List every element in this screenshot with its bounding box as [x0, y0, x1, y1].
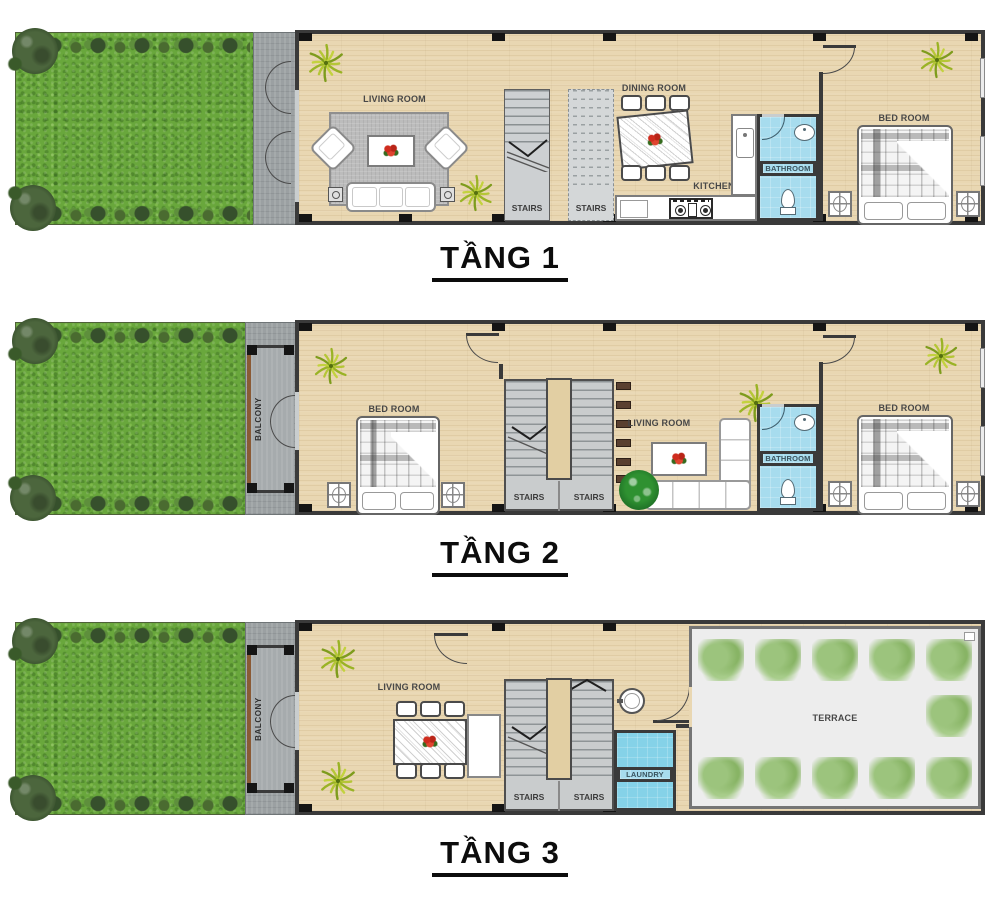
- stairs-block: STAIRS STAIRS: [504, 679, 614, 811]
- bed-fold: [391, 432, 436, 487]
- dining-chair: [444, 763, 465, 779]
- kitchen-sink-icon: [736, 128, 754, 158]
- walkway: BALCONY: [245, 622, 297, 815]
- door-arc-icon: [265, 131, 291, 158]
- nightstand: [828, 191, 852, 217]
- corner-bracket: [247, 483, 257, 493]
- terrace-bush-icon: [812, 639, 858, 681]
- column-marker: [299, 623, 312, 631]
- dining-chair: [444, 701, 465, 717]
- nightstand: [956, 481, 980, 507]
- stove-icon: [669, 198, 713, 219]
- shelf-slat: [616, 401, 631, 409]
- l-sofa: [645, 480, 751, 510]
- cabinet: [467, 714, 501, 778]
- shelf-slat: [616, 439, 631, 447]
- corner-bracket: [284, 645, 294, 655]
- door-arc-icon: [762, 117, 785, 140]
- stairs-block: STAIRS STAIRS: [504, 89, 614, 221]
- dining-chair: [420, 763, 441, 779]
- door-arc-icon: [270, 695, 295, 722]
- stairs-divider: [558, 781, 560, 811]
- stairs-block: STAIRS STAIRS: [504, 379, 614, 511]
- column-marker: [813, 33, 826, 41]
- plant-icon: [917, 40, 957, 80]
- bedroom-label: BED ROOM: [839, 113, 969, 123]
- terrace: TERRACE: [689, 626, 981, 809]
- door-arc-icon: [265, 87, 291, 114]
- terrace-bush-icon: [926, 757, 972, 799]
- flower-icon: [646, 132, 663, 148]
- bed: [857, 415, 953, 515]
- stairs-flight: STAIRS: [568, 89, 614, 221]
- balcony: BALCONY: [247, 645, 294, 793]
- house-floor-1: LIVING ROOM STAIRS: [295, 30, 985, 225]
- living-room-label: LIVING ROOM: [307, 94, 482, 104]
- kitchen-cabinet: [620, 200, 648, 218]
- burner-icon: [675, 205, 686, 216]
- plant-tuft-icon: [7, 57, 23, 71]
- terrace-bush-icon: [755, 639, 801, 681]
- terrace-bush-icon: [698, 757, 744, 799]
- dining-chair: [621, 165, 642, 181]
- stairs-label: STAIRS: [506, 792, 552, 802]
- pillow: [907, 202, 946, 220]
- door-opening: [295, 90, 299, 202]
- terrace-bush-icon: [926, 639, 972, 681]
- column-marker: [299, 804, 312, 812]
- bathroom: BATHROOM: [757, 114, 819, 221]
- column-marker: [492, 323, 505, 331]
- floor-title: TẦNG 1: [432, 240, 568, 282]
- floor-plan-tang-3: BALCONY LIVING ROOM: [15, 620, 985, 815]
- column-marker: [603, 623, 616, 631]
- door-arc-icon: [466, 335, 498, 363]
- laundry-room: LAUNDRY: [614, 730, 676, 811]
- dining-chair: [669, 165, 690, 181]
- stairs-label: STAIRS: [506, 492, 552, 502]
- stairs-flight: STAIRS: [504, 89, 550, 221]
- corner-bracket: [284, 345, 294, 355]
- dining-chair: [396, 763, 417, 779]
- door-arc-icon: [270, 721, 295, 748]
- floor-plan-tang-2: BALCONY BED ROOM: [15, 320, 985, 515]
- kitchen-counter: [731, 114, 757, 196]
- dining-table: [616, 109, 693, 170]
- living-room-label: LIVING ROOM: [604, 418, 714, 428]
- house-floor-2: BED ROOM STAIRS STAIRS: [295, 320, 985, 515]
- plant-tuft-icon: [7, 186, 23, 200]
- garden: [15, 622, 247, 815]
- round-sink-icon: [619, 688, 645, 714]
- house-floor-3: LIVING ROOM: [295, 620, 985, 815]
- stairs-label: STAIRS: [568, 203, 614, 213]
- terrace-bush-icon: [869, 757, 915, 799]
- garden: [15, 32, 255, 225]
- dining-chair: [645, 95, 666, 111]
- dining-chair: [420, 701, 441, 717]
- bed-fold: [897, 141, 949, 197]
- bed: [857, 125, 953, 225]
- floor-title: TẦNG 2: [432, 535, 568, 577]
- bed-fold: [897, 431, 949, 487]
- floor-plan-page: LIVING ROOM STAIRS: [0, 0, 1000, 900]
- door-arc-icon: [657, 686, 690, 721]
- column-marker: [299, 33, 312, 41]
- toilet-icon: [780, 479, 796, 505]
- terrace-bush-icon: [926, 695, 972, 737]
- door-opening: [295, 392, 299, 450]
- living-room-label: LIVING ROOM: [324, 682, 494, 692]
- window: [980, 58, 985, 98]
- sink-icon: [794, 414, 815, 431]
- plant-tuft-icon: [7, 347, 23, 361]
- door-arc-icon: [823, 337, 855, 364]
- bathroom-label: BATHROOM: [760, 161, 816, 176]
- stairs-stringer: [546, 678, 572, 780]
- plant-icon: [921, 336, 961, 376]
- window: [980, 136, 985, 186]
- plant-icon: [305, 42, 347, 84]
- speaker-icon: [440, 187, 455, 202]
- wall: [819, 72, 823, 221]
- coffee-table: [651, 442, 707, 476]
- grill-icon: [688, 203, 697, 217]
- shelf-slat: [616, 458, 631, 466]
- flower-icon: [422, 735, 438, 749]
- terrace-bush-icon: [869, 639, 915, 681]
- column-marker: [603, 323, 616, 331]
- bathroom-label: BATHROOM: [760, 451, 816, 466]
- door-arc-icon: [762, 407, 785, 430]
- dining-chair: [645, 165, 666, 181]
- door-arc-icon: [434, 635, 467, 664]
- shrub-row: [30, 793, 242, 812]
- plant-icon: [317, 760, 359, 802]
- corner-bracket: [284, 483, 294, 493]
- nightstand: [441, 482, 465, 508]
- balcony: BALCONY: [247, 345, 294, 493]
- sofa: [346, 182, 436, 212]
- garden: [15, 322, 247, 515]
- corner-bracket: [247, 645, 257, 655]
- plant-icon: [311, 346, 351, 386]
- window: [980, 426, 985, 476]
- column-marker: [965, 33, 978, 41]
- dining-chair: [396, 701, 417, 717]
- column-marker: [813, 323, 826, 331]
- pillow: [907, 492, 946, 510]
- wall: [499, 364, 503, 379]
- bed: [356, 416, 440, 515]
- stairs-stringer: [546, 378, 572, 480]
- door-arc-icon: [270, 395, 295, 422]
- burner-icon: [700, 205, 711, 216]
- column-marker: [492, 623, 505, 631]
- kitchen-counter: [615, 195, 757, 221]
- corner-bracket: [284, 783, 294, 793]
- shelf-slat: [616, 382, 631, 390]
- door-arc-icon: [265, 157, 291, 184]
- bathroom: BATHROOM: [757, 404, 819, 511]
- plant-tuft-icon: [7, 776, 23, 790]
- plant-icon: [456, 173, 496, 213]
- column-marker: [965, 323, 978, 331]
- corner-bracket: [247, 783, 257, 793]
- wall: [819, 362, 823, 511]
- column-marker: [492, 33, 505, 41]
- balcony-label: BALCONY: [254, 397, 263, 441]
- dining-table: [393, 719, 467, 765]
- shrub-row: [30, 625, 242, 644]
- plant-tuft-icon: [7, 476, 23, 490]
- door-arc-icon: [270, 421, 295, 448]
- drain-marker: [964, 632, 975, 641]
- column-marker: [399, 214, 412, 222]
- shrub-row: [30, 325, 242, 344]
- stairs-label: STAIRS: [504, 203, 550, 213]
- door-arc-icon: [265, 61, 291, 88]
- walkway: [253, 32, 297, 225]
- terrace-bush-icon: [755, 757, 801, 799]
- stairs-label: STAIRS: [566, 492, 612, 502]
- column-marker: [299, 214, 312, 222]
- coffee-table: [367, 135, 415, 167]
- round-bush-icon: [619, 470, 659, 510]
- floor-title-wrap: TẦNG 1: [15, 240, 985, 282]
- bedroom-front-label: BED ROOM: [334, 404, 454, 414]
- pillow: [362, 492, 396, 510]
- nightstand: [828, 481, 852, 507]
- flower-icon: [383, 144, 399, 158]
- balcony-label: BALCONY: [254, 697, 263, 741]
- floor-plan-tang-1: LIVING ROOM STAIRS: [15, 30, 985, 225]
- plant-tuft-icon: [7, 647, 23, 661]
- column-marker: [299, 504, 312, 512]
- dining-chair: [621, 95, 642, 111]
- shrub-row: [30, 35, 250, 54]
- nightstand: [956, 191, 980, 217]
- floor-title-wrap: TẦNG 2: [15, 535, 985, 577]
- plant-icon: [317, 638, 359, 680]
- window: [980, 348, 985, 388]
- toilet-icon: [780, 189, 796, 215]
- stairs-divider: [558, 481, 560, 511]
- pillow: [400, 492, 434, 510]
- stairs-break-icon: [505, 138, 551, 172]
- terrace-bush-icon: [698, 639, 744, 681]
- sink-icon: [794, 124, 815, 141]
- pillow: [864, 492, 903, 510]
- door-opening: [295, 692, 299, 750]
- floor-title: TẦNG 3: [432, 835, 568, 877]
- shrub-row: [30, 203, 250, 222]
- dining-room-label: DINING ROOM: [599, 83, 709, 93]
- pillow: [864, 202, 903, 220]
- walkway: BALCONY: [245, 322, 297, 515]
- column-marker: [299, 323, 312, 331]
- column-marker: [603, 33, 616, 41]
- corner-bracket: [247, 345, 257, 355]
- floor-title-wrap: TẦNG 3: [15, 835, 985, 877]
- speaker-icon: [328, 187, 343, 202]
- stairs-label: STAIRS: [566, 792, 612, 802]
- door-arc-icon: [823, 47, 855, 74]
- terrace-bush-icon: [812, 757, 858, 799]
- bedroom-back-label: BED ROOM: [839, 403, 969, 413]
- laundry-label: LAUNDRY: [617, 767, 673, 782]
- shrub-row: [30, 493, 242, 512]
- nightstand: [327, 482, 351, 508]
- flower-icon: [671, 452, 687, 466]
